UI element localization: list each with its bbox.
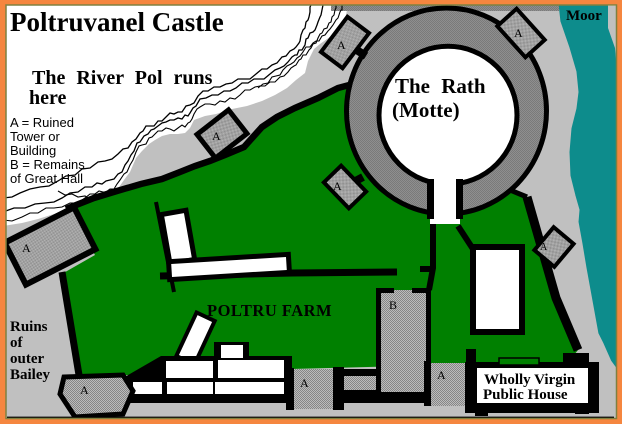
svg-text:Public House: Public House	[483, 387, 568, 403]
svg-text:A: A	[80, 383, 89, 397]
svg-text:Tower or: Tower or	[10, 129, 61, 144]
svg-text:A: A	[337, 38, 346, 52]
svg-text:A: A	[212, 129, 221, 143]
svg-text:B: B	[389, 298, 397, 312]
svg-text:Ruins: Ruins	[10, 319, 48, 335]
svg-text:A: A	[300, 376, 309, 390]
svg-text:Bailey: Bailey	[10, 367, 50, 383]
svg-text:Moor: Moor	[566, 8, 602, 24]
svg-text:outer: outer	[10, 351, 44, 367]
svg-text:Wholly Virgin: Wholly Virgin	[484, 372, 576, 388]
svg-text:A = Ruined: A = Ruined	[10, 115, 74, 130]
svg-text:A: A	[22, 241, 31, 255]
svg-text:B = Remains: B = Remains	[10, 157, 85, 172]
svg-text:A: A	[333, 179, 342, 193]
svg-text:(Motte): (Motte)	[392, 98, 460, 122]
svg-text:Poltruvanel Castle: Poltruvanel Castle	[10, 7, 224, 37]
svg-text:POLTRU FARM: POLTRU FARM	[207, 301, 332, 320]
svg-text:The Rath: The Rath	[395, 74, 486, 98]
svg-text:A: A	[437, 368, 446, 382]
svg-text:The River Pol runs: The River Pol runs	[32, 67, 213, 89]
svg-text:of: of	[10, 335, 24, 351]
svg-text:here: here	[29, 87, 67, 109]
svg-text:A: A	[514, 26, 523, 40]
svg-text:A: A	[540, 242, 548, 253]
svg-text:Building: Building	[10, 143, 56, 158]
svg-text:of Great Hall: of Great Hall	[10, 171, 83, 186]
